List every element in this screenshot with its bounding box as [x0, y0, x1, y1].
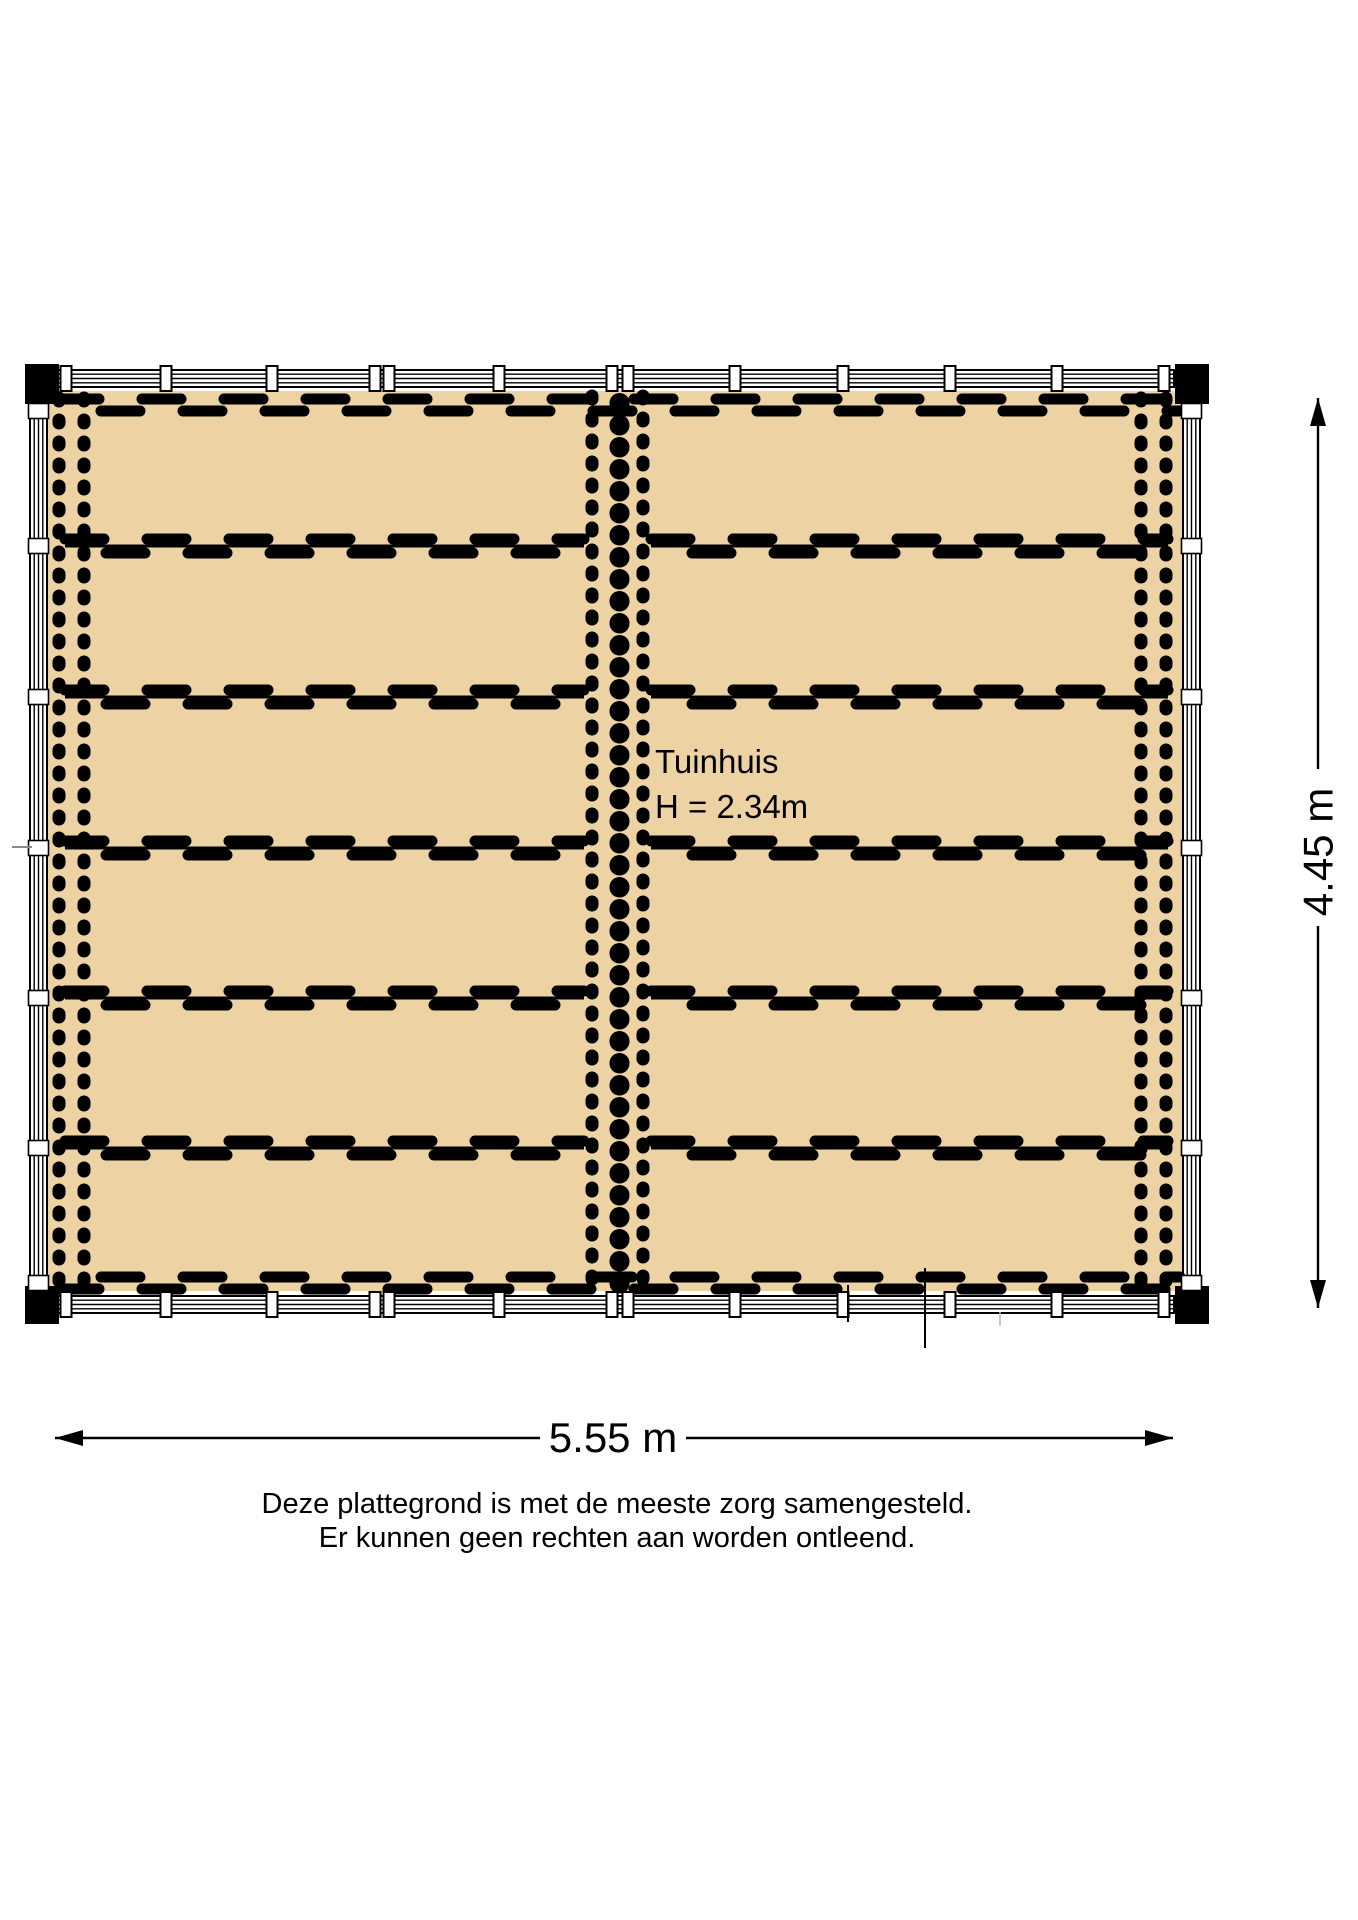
rail-post: [1052, 1292, 1063, 1317]
corner-post: [1175, 1286, 1209, 1324]
wall-joint: [29, 1276, 49, 1291]
arrow-right-icon: [1145, 1430, 1173, 1446]
room-height-label: H = 2.34m: [655, 788, 808, 825]
rail-post: [945, 1292, 956, 1317]
rail-post: [384, 1292, 395, 1317]
floorplan-canvas: Tuinhuis H = 2.34m 5.55 m 4.45 m Deze pl…: [0, 0, 1358, 1920]
rail-post: [623, 1292, 634, 1317]
wall-joint: [29, 690, 49, 705]
rail-post: [161, 1292, 172, 1317]
wall-joint: [29, 991, 49, 1006]
rail-post: [607, 1292, 618, 1317]
disclaimer-line-1: Deze plattegrond is met de meeste zorg s…: [262, 1488, 973, 1520]
rail-post: [61, 1292, 72, 1317]
rail-post: [623, 366, 634, 391]
wall-joint: [1182, 404, 1202, 419]
rail-post: [1052, 366, 1063, 391]
rail-post: [607, 366, 618, 391]
room-label: Tuinhuis: [655, 743, 779, 780]
rail-post: [838, 1292, 849, 1317]
width-dimension-label: 5.55 m: [549, 1414, 677, 1461]
rail-post: [1159, 366, 1170, 391]
rail-post: [945, 366, 956, 391]
arrow-up-icon: [1310, 398, 1326, 426]
rail-post: [730, 1292, 741, 1317]
wall-joint: [29, 1141, 49, 1156]
rail-post: [267, 1292, 278, 1317]
wall-joint: [1182, 991, 1202, 1006]
corner-post: [25, 1286, 59, 1324]
rail-post: [494, 366, 505, 391]
disclaimer-line-2: Er kunnen geen rechten aan worden ontlee…: [319, 1522, 916, 1554]
rail-post: [61, 366, 72, 391]
rail-post: [1159, 1292, 1170, 1317]
wall-joint: [1182, 1276, 1202, 1291]
rail-post: [267, 366, 278, 391]
rail-post: [370, 1292, 381, 1317]
width-dimension: 5.55 m: [55, 1414, 1173, 1461]
wall-joint: [29, 539, 49, 554]
floorplan-page: Tuinhuis H = 2.34m 5.55 m 4.45 m Deze pl…: [0, 0, 1358, 1920]
rail-post: [838, 366, 849, 391]
rail-post: [494, 1292, 505, 1317]
wall-joint: [1182, 1141, 1202, 1156]
arrow-down-icon: [1310, 1280, 1326, 1308]
rail-post: [384, 366, 395, 391]
rail-post: [370, 366, 381, 391]
wall-joint: [1182, 690, 1202, 705]
arrow-left-icon: [55, 1430, 83, 1446]
wall-joint: [29, 404, 49, 419]
wall-joint: [1182, 539, 1202, 554]
rail-post: [161, 366, 172, 391]
height-dimension: 4.45 m: [1295, 398, 1342, 1308]
rail-post: [730, 366, 741, 391]
wall-joint: [1182, 841, 1202, 856]
corner-post: [1175, 364, 1209, 404]
height-dimension-label: 4.45 m: [1295, 788, 1342, 916]
